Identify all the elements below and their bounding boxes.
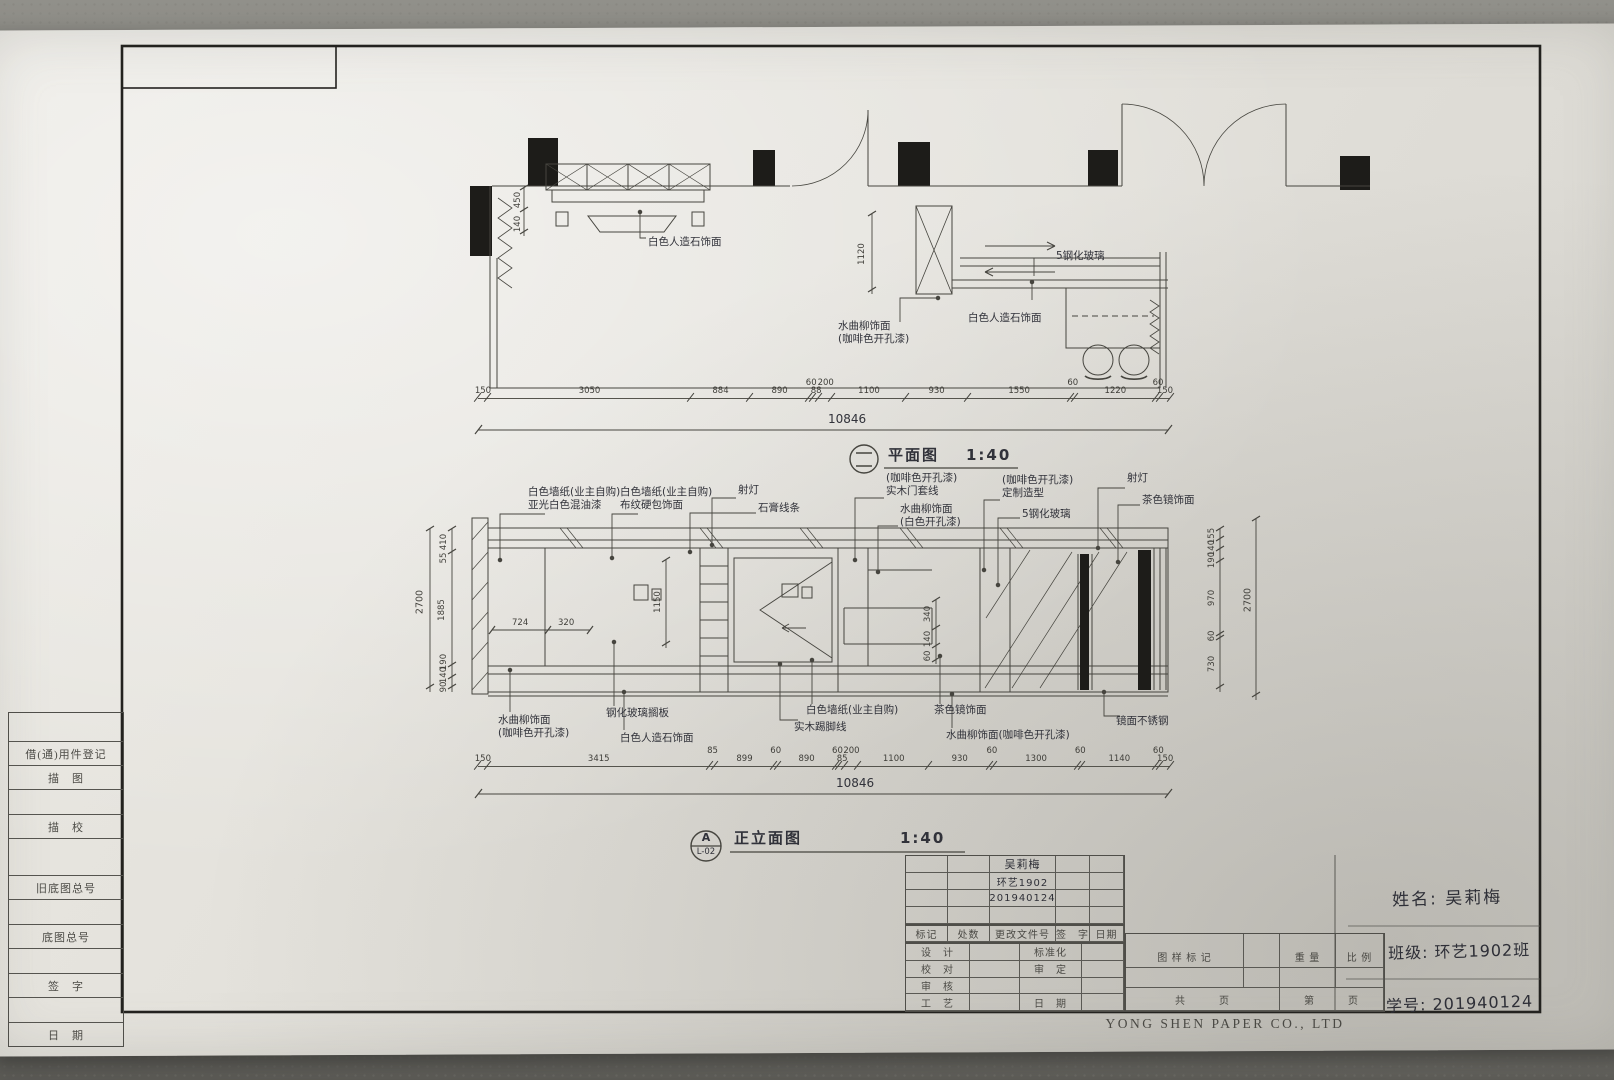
margin-blank [9, 713, 123, 742]
elev-left-dim: 55 [439, 553, 449, 564]
title-block: 吴莉梅 环艺1902 201940124 标记 处数 更改文件号 签 字 日期 [905, 855, 1385, 1012]
elev-annotation: (咖啡色开孔漆) 实木门套线 [886, 472, 957, 497]
pages-total: 共 页 [1126, 988, 1280, 1011]
dim-cell: 3415 [488, 752, 710, 766]
dim-cell: 150 [1160, 384, 1170, 398]
plan-left-dim: 450 [513, 192, 523, 208]
header-date: 日期 [1090, 926, 1124, 942]
elev-right-dim: 60 [1207, 631, 1217, 642]
plan-left-dim: 140 [513, 216, 523, 232]
change-log-table: 吴莉梅 环艺1902 201940124 [905, 855, 1125, 925]
dim-cell: 930 [906, 384, 968, 398]
header-sign: 签 字 [1056, 926, 1090, 942]
plan-annotation-glass: 5钢化玻璃 [1056, 250, 1105, 263]
row-date: 日 期 [1020, 994, 1082, 1011]
dim-cell: 1220 [1075, 384, 1156, 398]
elev-right-dim: 970 [1207, 590, 1217, 606]
elevation-scale: 1:40 [900, 829, 945, 847]
margin-row-label: 旧底图总号 [36, 880, 96, 896]
dim-cell: 150 [478, 752, 488, 766]
elev-left-dim: 1885 [437, 599, 447, 621]
weight-label: 重 量 [1280, 934, 1336, 968]
dim-cell: 890 [750, 384, 809, 398]
header-file: 更改文件号 [990, 926, 1056, 942]
elev-annotation: 白色墙纸(业主自购) 布纹硬包饰面 [620, 486, 712, 511]
photo-of-drawing: 借(通)用件登记 描 图 描 校 旧底图总号 底图总号 签 字 日 期 白色人造… [0, 0, 1614, 1080]
dim-cell: 899 [715, 752, 773, 766]
stamp-table: 图 样 标 记 重 量 比 例 共 页 第 页 [1125, 933, 1385, 1012]
dim-cell: 1550 [968, 384, 1071, 398]
elev-annotation: 水曲柳饰面 (白色开孔漆) [900, 503, 961, 528]
plan-scale: 1:40 [966, 446, 1011, 464]
row-craft: 工 艺 [906, 994, 970, 1011]
elev-interior-dim: 340 [923, 606, 933, 622]
dim-cell: 1140 [1082, 752, 1156, 766]
student-id-line: 学号: 201940124 [1386, 987, 1534, 1016]
elev-annotation: (咖啡色开孔漆) 定制造型 [1002, 474, 1073, 499]
row-review: 审 核 [906, 978, 970, 995]
margin-row-label: 描 图 [48, 770, 84, 786]
row-standard: 标准化 [1020, 944, 1082, 961]
dim-cell: 200 [845, 752, 858, 766]
elev-right-dim: 190 [1207, 552, 1217, 568]
margin-blank [9, 790, 123, 815]
elev-annotation: 镜面不锈钢 [1116, 715, 1169, 728]
margin-blank [9, 998, 123, 1023]
elev-annotation: 白色墙纸(业主自购) [806, 704, 898, 717]
elev-annotation: 茶色镜饰面 [1142, 494, 1195, 507]
elev-annotation: 射灯 [738, 484, 759, 497]
plan-annotation-veneer: 水曲柳饰面 (咖啡色开孔漆) [838, 320, 909, 345]
plan-total-dim: 10846 [828, 412, 866, 426]
elev-annotation: 钢化玻璃搁板 [606, 707, 669, 720]
row-check: 校 对 [906, 961, 970, 978]
elev-left-dim: 410 [439, 534, 449, 550]
plan-vertical-dim: 1120 [857, 243, 867, 265]
elevation-ref-letter: A [691, 831, 721, 844]
plan-drawing [470, 104, 1370, 473]
plan-annotation-stone-2: 白色人造石饰面 [968, 312, 1042, 325]
row-design: 设 计 [906, 944, 970, 961]
dim-cell: 1300 [994, 752, 1079, 766]
elev-annotation: 射灯 [1127, 472, 1148, 485]
row-approve: 审 定 [1020, 961, 1082, 978]
elevation-title: 正立面图 [734, 829, 802, 847]
elev-left-overall: 2700 [415, 590, 426, 614]
stamp-label: 图 样 标 记 [1126, 934, 1244, 968]
elev-annotation: 白色墙纸(业主自购) 亚光白色混油漆 [528, 486, 620, 511]
elevation-total-dim: 10846 [836, 776, 874, 790]
elev-interior-dim: 320 [558, 618, 574, 628]
dim-cell: 3050 [488, 384, 691, 398]
elev-interior-dim: 140 [923, 631, 933, 647]
elevation-drawing [426, 488, 1260, 861]
plan-annotation-stone: 白色人造石饰面 [648, 236, 722, 249]
elev-interior-dim: 724 [512, 618, 528, 628]
elev-annotation: 5钢化玻璃 [1022, 508, 1071, 521]
change-header-row: 标记 处数 更改文件号 签 字 日期 [905, 925, 1125, 943]
elevation-ref-sheet: L-02 [691, 847, 721, 857]
student-class-line: 班级: 环艺1902班 [1388, 936, 1531, 964]
margin-row-label: 底图总号 [42, 929, 90, 945]
handwritten-name: 吴莉梅 [990, 856, 1056, 873]
dim-cell: 1100 [858, 752, 930, 766]
margin-blank [9, 839, 123, 876]
margin-row-label: 描 校 [48, 819, 84, 835]
elev-annotation: 水曲柳饰面 (咖啡色开孔漆) [498, 714, 569, 739]
elev-left-dim: 90 [439, 682, 449, 693]
elev-annotation: 石膏线条 [758, 502, 800, 515]
elev-annotation: 水曲柳饰面(咖啡色开孔漆) [946, 729, 1070, 742]
margin-row-label: 签 字 [48, 978, 84, 994]
plan-title: 平面图 [888, 446, 939, 464]
scale-label: 比 例 [1336, 934, 1384, 968]
dim-cell: 150 [1160, 752, 1170, 766]
elev-interior-dim: 1150 [653, 591, 663, 613]
dim-cell: 890 [778, 752, 836, 766]
margin-blank [9, 900, 123, 925]
paper-brand-footer: YONG SHEN PAPER CO., LTD [1095, 1016, 1355, 1032]
left-margin-table: 借(通)用件登记 描 图 描 校 旧底图总号 底图总号 签 字 日 期 [8, 712, 124, 1047]
pages-no: 第 页 [1280, 988, 1384, 1011]
margin-row-label: 借(通)用件登记 [25, 746, 106, 762]
elev-interior-dim: 60 [923, 651, 933, 662]
margin-row-label: 日 期 [48, 1027, 84, 1043]
elev-annotation: 白色人造石饰面 [620, 732, 694, 745]
plan-dimension-row: 150 3050 884 890 60 88 200 1100 930 1550… [478, 384, 1170, 399]
dim-cell: 884 [691, 384, 750, 398]
margin-blank [9, 949, 123, 974]
elev-right-dim: 730 [1207, 656, 1217, 672]
dim-cell: 1100 [832, 384, 905, 398]
handwritten-class: 环艺1902 [990, 873, 1056, 890]
dim-cell: 930 [929, 752, 989, 766]
elev-right-overall: 2700 [1243, 588, 1254, 612]
handwritten-id: 201940124 [990, 890, 1056, 907]
elev-annotation: 实木踢脚线 [794, 721, 847, 734]
student-name-line: 姓名: 吴莉梅 [1392, 883, 1503, 911]
elevation-dimension-row: 150 3415 85 899 60 890 60 85 200 1100 93… [478, 752, 1170, 767]
header-count: 处数 [948, 926, 990, 942]
approval-table: 设 计 标准化 校 对 审 定 审 核 工 艺 日 期 [905, 943, 1125, 1012]
header-mark: 标记 [906, 926, 948, 942]
elev-annotation: 茶色镜饰面 [934, 704, 987, 717]
